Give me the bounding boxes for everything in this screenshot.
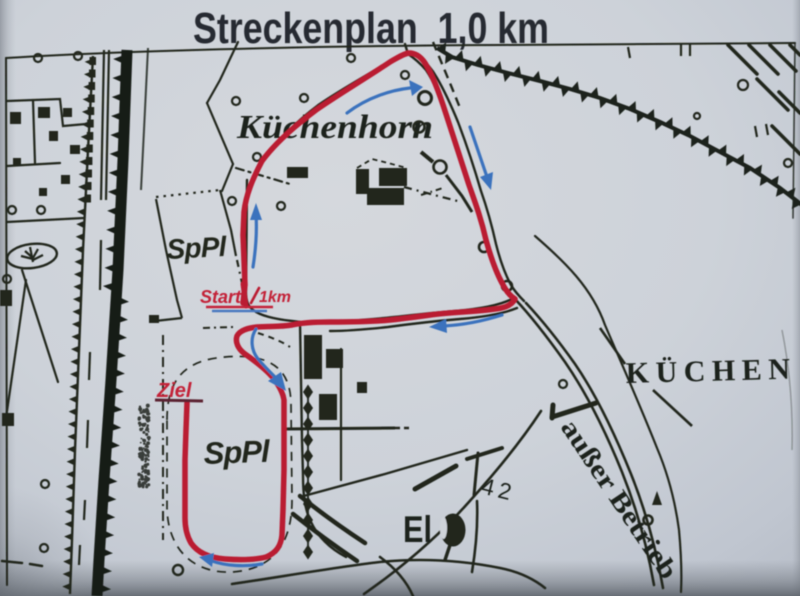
svg-text:1km: 1km (259, 289, 291, 306)
svg-text:El: El (403, 509, 432, 550)
svg-text:SpPl: SpPl (166, 231, 229, 265)
svg-text:Küchenhorn: Küchenhorn (236, 109, 433, 146)
svg-text:Start: Start (200, 287, 242, 307)
svg-text:KÜCHEN: KÜCHEN (625, 353, 796, 390)
svg-text:SpPl: SpPl (203, 434, 272, 471)
